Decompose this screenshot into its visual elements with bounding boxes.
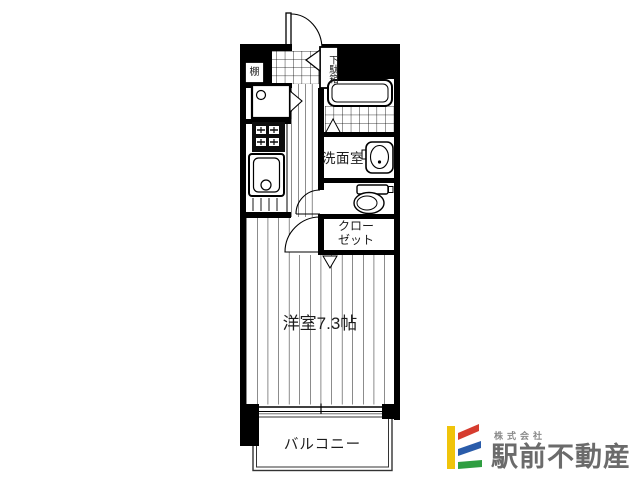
company-prefix: 株式会社 <box>494 432 631 441</box>
stove-icon <box>252 122 285 152</box>
floor-plan-page: 棚 下駄箱 洗面室 クロー ゼット 洋室7.3帖 バルコニー 株式会社 駅前不動… <box>0 0 640 480</box>
company-logo: 株式会社 駅前不動産 <box>446 423 631 471</box>
entrance-door-leaf <box>286 13 291 49</box>
room-door-arc-icon <box>285 217 320 252</box>
label-shelf: 棚 <box>245 63 264 83</box>
label-closet: クロー ゼット <box>318 220 394 248</box>
label-washroom: 洗面室 <box>322 147 364 167</box>
room-floor-left <box>246 218 290 255</box>
label-closet-line1: クロー <box>318 220 394 234</box>
label-main-room: 洋室7.3帖 <box>246 309 394 334</box>
balcony-window <box>259 404 382 414</box>
wash-basin-icon <box>362 142 393 173</box>
counter-lines <box>253 198 277 211</box>
kitchen-sink-icon <box>249 154 284 196</box>
logo-mark-icon <box>446 423 486 471</box>
label-shoe-box: 下駄箱 <box>321 50 337 88</box>
label-balcony: バルコニー <box>253 433 392 454</box>
label-closet-line2: ゼット <box>318 234 394 248</box>
company-name: 駅前不動産 <box>491 444 631 471</box>
toilet-icon <box>354 185 393 214</box>
entrance-door-arc-icon <box>291 14 322 49</box>
